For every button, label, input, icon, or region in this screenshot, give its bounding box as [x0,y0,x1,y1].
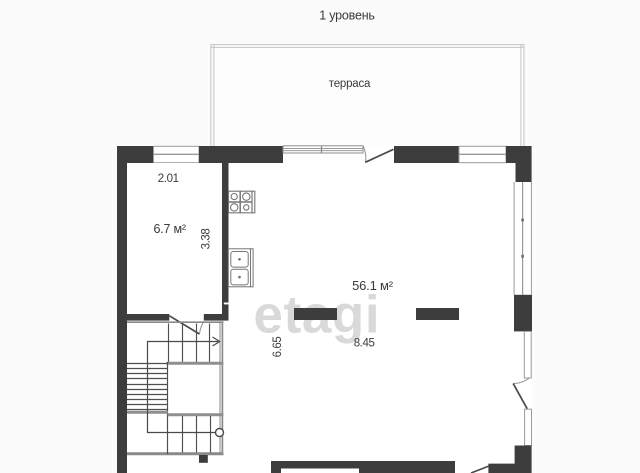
svg-text:56.1 м²: 56.1 м² [352,278,394,293]
svg-text:2.01: 2.01 [158,173,179,185]
svg-text:6.7 м²: 6.7 м² [153,222,185,236]
svg-text:терраса: терраса [329,78,371,90]
svg-text:1 уровень: 1 уровень [319,9,375,23]
svg-text:6.65: 6.65 [272,337,284,358]
svg-text:3.38: 3.38 [201,229,213,250]
svg-text:8.45: 8.45 [354,338,375,350]
